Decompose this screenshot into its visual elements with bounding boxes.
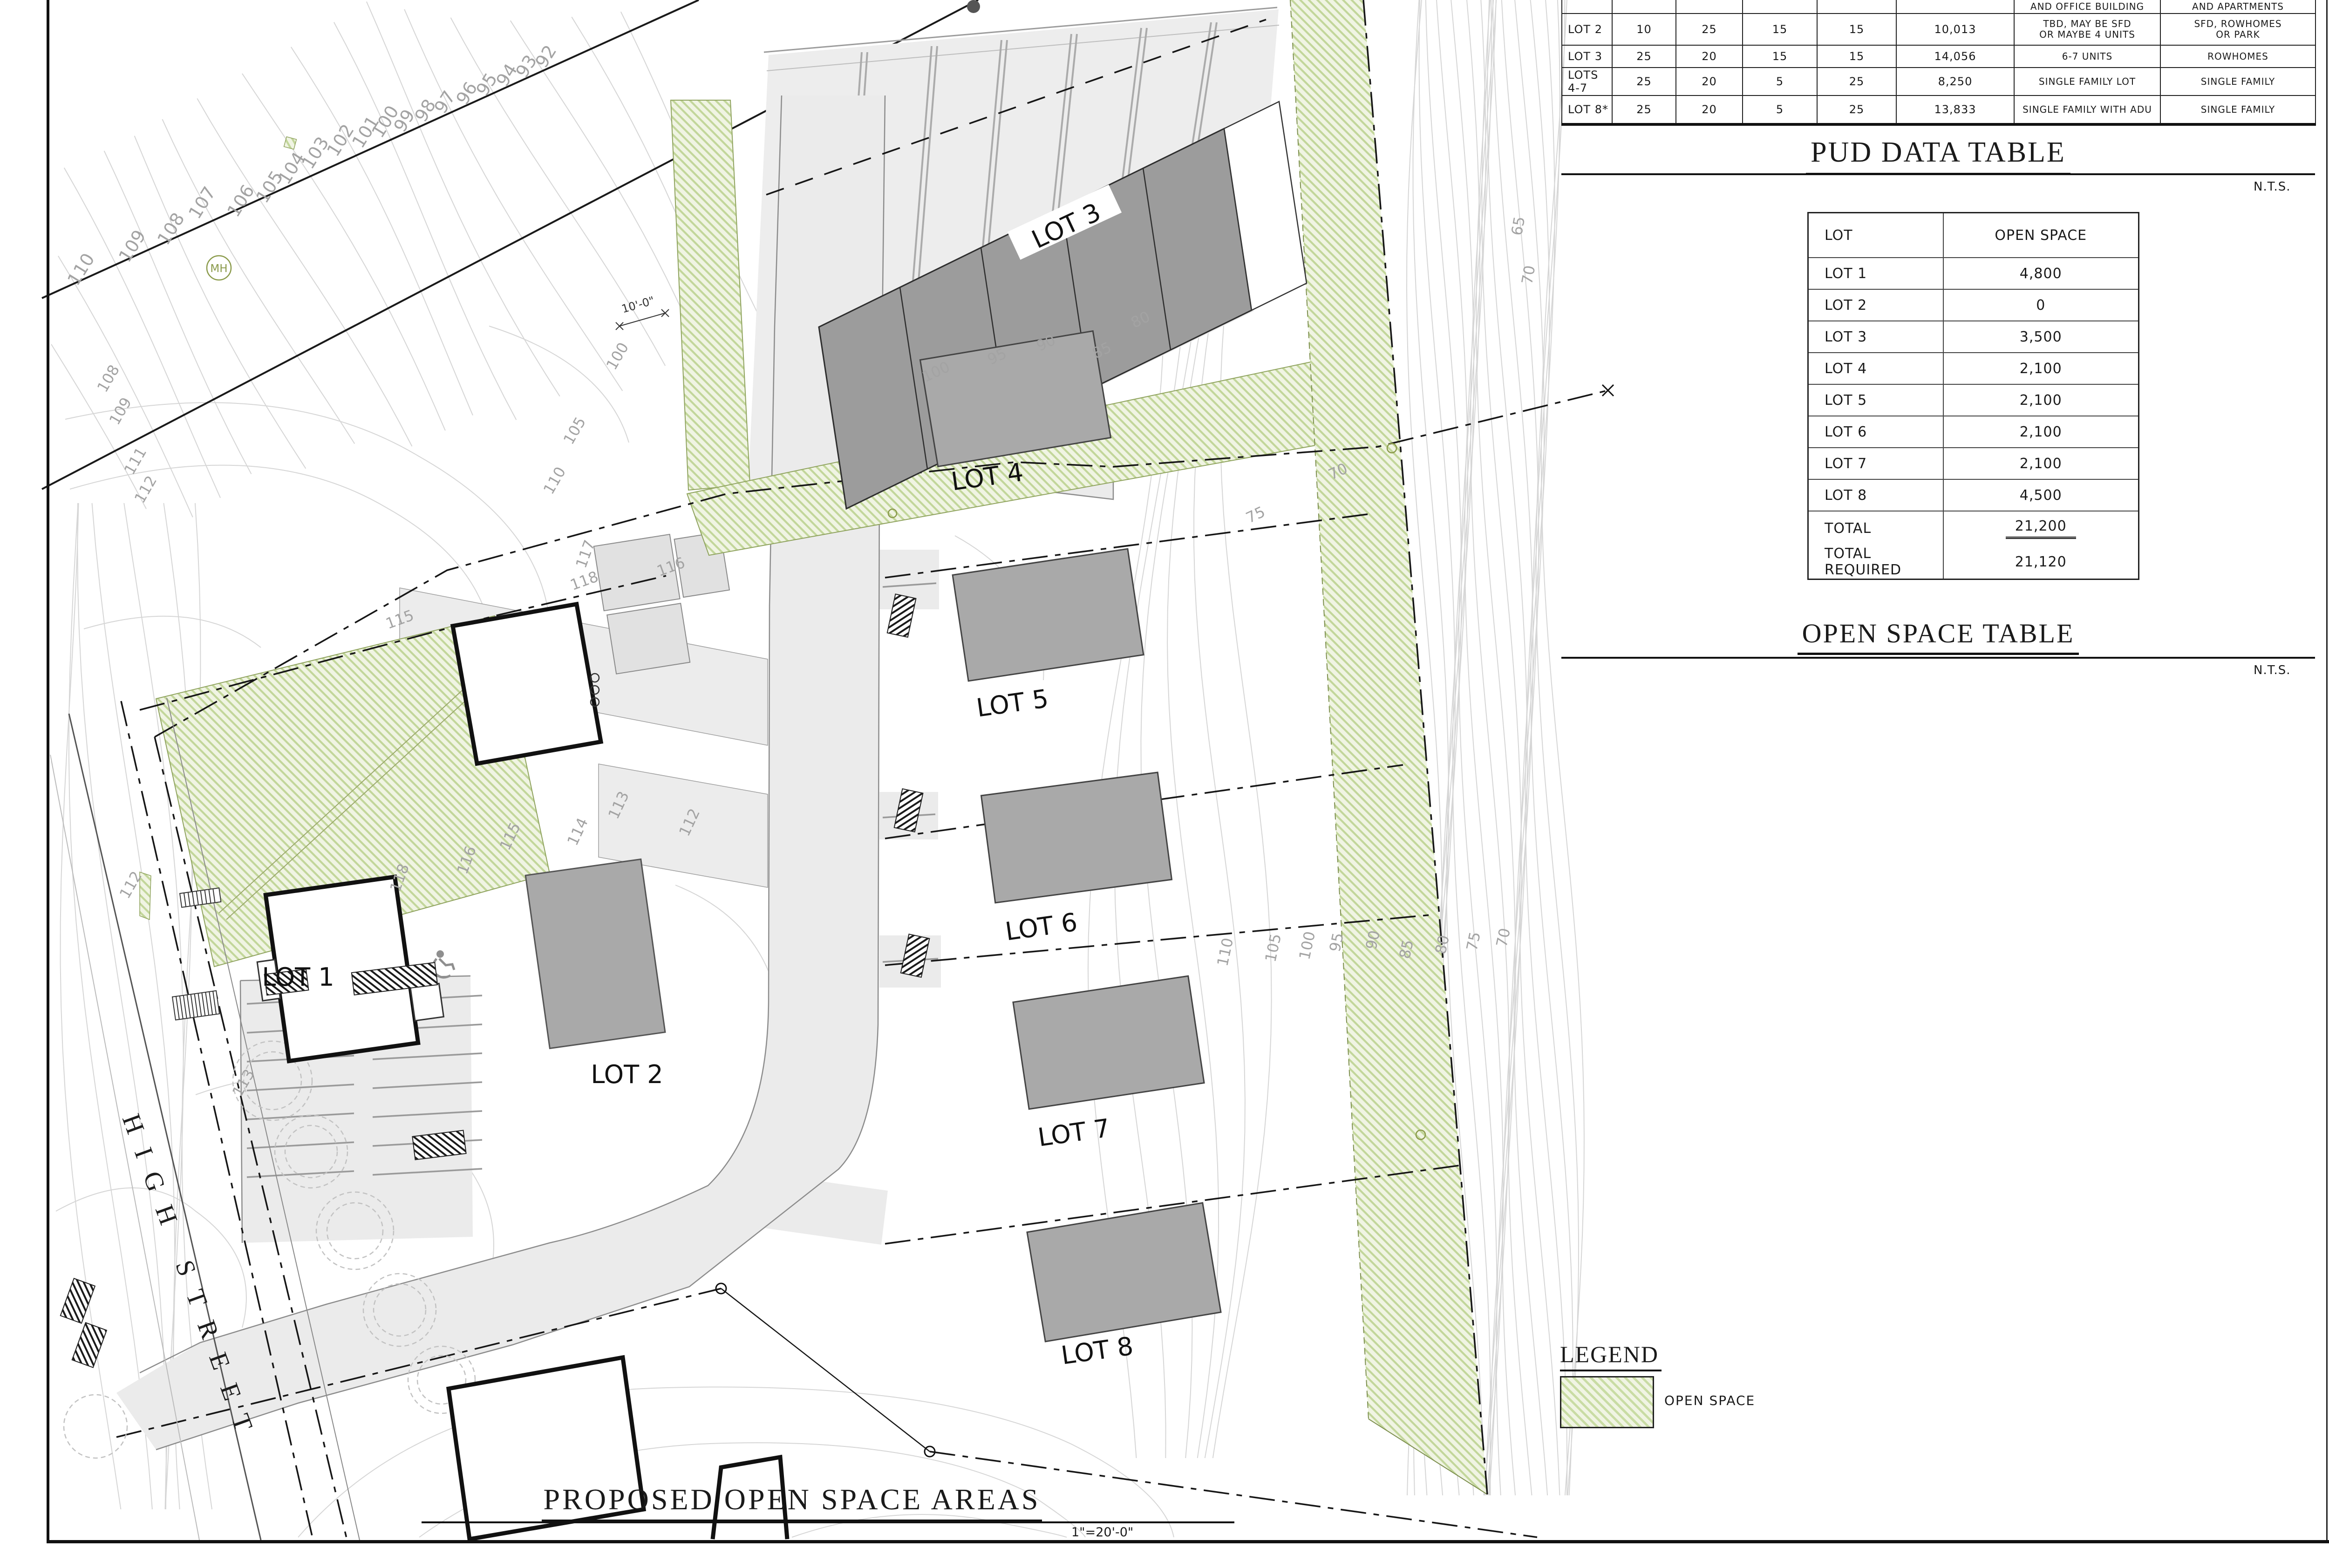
pud-cell: SINGLE FAMILY bbox=[2160, 68, 2315, 95]
rule bbox=[1561, 657, 2315, 659]
table-row: LOT OPEN SPACE bbox=[1808, 213, 2139, 258]
table-row: TOTAL REQUIRED21,120 bbox=[1808, 545, 2139, 579]
os-cell: LOT 6 bbox=[1808, 416, 1943, 448]
pud-cell: SFD, ROWHOMES OR PARK bbox=[2160, 14, 2315, 45]
pud-cell: 13,833 bbox=[1896, 95, 2014, 124]
contour-label: 108 bbox=[94, 362, 123, 395]
os-header: OPEN SPACE bbox=[1943, 213, 2139, 258]
lot2-label: LOT 2 bbox=[591, 1060, 663, 1089]
lot2-building bbox=[525, 859, 665, 1048]
legend-title: LEGEND bbox=[1560, 1341, 1662, 1371]
os-cell: 2,100 bbox=[1943, 384, 2139, 416]
table-row: LOT 52,100 bbox=[1808, 384, 2139, 416]
pud-cell: 6-7 UNITS bbox=[2014, 45, 2160, 68]
table-row: LOT 33,500 bbox=[1808, 321, 2139, 353]
contour-label: 110 bbox=[1213, 936, 1237, 968]
pud-cell: AND OFFICE BUILDING bbox=[2014, 0, 2160, 14]
legend-open-space-label: OPEN SPACE bbox=[1664, 1393, 1755, 1408]
contour-label: 109 bbox=[115, 226, 150, 266]
table-row: LOT 62,100 bbox=[1808, 416, 2139, 448]
table-row: LOT 72,100 bbox=[1808, 448, 2139, 479]
pud-cell: 25 bbox=[1676, 14, 1743, 45]
os-cell: 3,500 bbox=[1943, 321, 2139, 353]
contour-label: 117 bbox=[572, 538, 599, 570]
table-row: LOT 84,500 bbox=[1808, 479, 2139, 511]
pud-cell: ROWHOMES bbox=[2160, 45, 2315, 68]
contour-label: 75 bbox=[1463, 930, 1484, 953]
pud-cell: 20 bbox=[1676, 95, 1743, 124]
open-space-table-title: OPEN SPACE TABLE bbox=[1561, 618, 2315, 655]
plan-scale-note: 1"=20'-0" bbox=[1071, 1525, 1133, 1540]
lot6-house bbox=[981, 772, 1171, 903]
pud-cell: 20 bbox=[1676, 68, 1743, 95]
contour-label: 108 bbox=[153, 209, 189, 249]
pud-cell: LOTS 4-7 bbox=[1562, 68, 1612, 95]
rule bbox=[422, 1521, 1234, 1523]
contour-label: 109 bbox=[106, 395, 135, 428]
contour-label: 107 bbox=[184, 183, 220, 223]
contour-label: 111 bbox=[121, 444, 150, 478]
pud-cell: 10,013 bbox=[1896, 14, 2014, 45]
table-row: LOT 2 10 25 15 15 10,013 TBD, MAY BE SFD… bbox=[1562, 14, 2315, 45]
manhole: MH bbox=[207, 256, 231, 280]
pud-cell: AND APARTMENTS bbox=[2160, 0, 2315, 14]
open-space-table: LOT OPEN SPACE LOT 14,800 LOT 20 LOT 33,… bbox=[1807, 212, 2139, 580]
contour-label: 110 bbox=[540, 464, 569, 498]
lot5-label: LOT 5 bbox=[974, 684, 1050, 723]
os-cell: 21,120 bbox=[1943, 545, 2139, 579]
table-row: LOT 14,800 bbox=[1808, 258, 2139, 289]
pud-cell: LOT 2 bbox=[1562, 14, 1612, 45]
contour-label: 118 bbox=[568, 567, 600, 594]
pud-cell: 5 bbox=[1743, 95, 1817, 124]
os-cell: 4,800 bbox=[1943, 258, 2139, 289]
os-cell: 2,100 bbox=[1943, 416, 2139, 448]
pud-cell: 10 bbox=[1612, 14, 1676, 45]
os-cell: TOTAL bbox=[1808, 511, 1943, 545]
contour-label: 75 bbox=[1243, 503, 1268, 527]
pud-cell: 20 bbox=[1676, 45, 1743, 68]
os-cell: LOT 7 bbox=[1808, 448, 1943, 479]
pud-cell: SINGLE FAMILY LOT bbox=[2014, 68, 2160, 95]
pud-cell: 5 bbox=[1743, 68, 1817, 95]
pud-nts: N.T.S. bbox=[2254, 180, 2291, 194]
pud-cell: 25 bbox=[1817, 68, 1896, 95]
contour-label: 105 bbox=[1261, 932, 1285, 964]
os-cell: 2,100 bbox=[1943, 448, 2139, 479]
table-row: LOT 20 bbox=[1808, 289, 2139, 321]
pud-cell: 25 bbox=[1612, 45, 1676, 68]
os-cell: LOT 8 bbox=[1808, 479, 1943, 511]
os-cell: LOT 5 bbox=[1808, 384, 1943, 416]
pud-cell: 8,250 bbox=[1896, 68, 2014, 95]
legend: LEGEND OPEN SPACE bbox=[1560, 1341, 1662, 1371]
contour-label: 80 bbox=[1431, 934, 1453, 956]
pud-cell: 25 bbox=[1817, 95, 1896, 124]
os-cell: 2,100 bbox=[1943, 353, 2139, 384]
table-row: TOTAL21,200 bbox=[1808, 511, 2139, 545]
os-cell: 4,500 bbox=[1943, 479, 2139, 511]
table-row: LOT 8* 25 20 5 25 13,833 SINGLE FAMILY W… bbox=[1562, 95, 2315, 124]
lot6-label: LOT 6 bbox=[1003, 907, 1079, 947]
table-row: LOT 3 25 20 15 15 14,056 6-7 UNITS ROWHO… bbox=[1562, 45, 2315, 68]
mh-label: MH bbox=[210, 263, 227, 275]
contour-label: 65 bbox=[1508, 215, 1528, 237]
table-row: LOTS 4-7 25 20 5 25 8,250 SINGLE FAMILY … bbox=[1562, 68, 2315, 95]
lot7-house bbox=[1013, 976, 1204, 1109]
contour-label: 110 bbox=[63, 250, 99, 289]
pud-cell: 15 bbox=[1743, 14, 1817, 45]
open-space-nts: N.T.S. bbox=[2254, 663, 2291, 677]
pud-cell: 25 bbox=[1612, 68, 1676, 95]
pud-cell: TBD, MAY BE SFD OR MAYBE 4 UNITS bbox=[2014, 14, 2160, 45]
table-row: AND OFFICE BUILDING AND APARTMENTS bbox=[1562, 0, 2315, 14]
os-cell: TOTAL REQUIRED bbox=[1808, 545, 1943, 579]
os-cell: 0 bbox=[1943, 289, 2139, 321]
pud-cell: SINGLE FAMILY WITH ADU bbox=[2014, 95, 2160, 124]
pud-table-title: PUD DATA TABLE bbox=[1561, 136, 2315, 175]
os-cell: LOT 1 bbox=[1808, 258, 1943, 289]
rule bbox=[1561, 173, 2315, 175]
os-cell: LOT 3 bbox=[1808, 321, 1943, 353]
os-cell: LOT 4 bbox=[1808, 353, 1943, 384]
pud-cell: SINGLE FAMILY bbox=[2160, 95, 2315, 124]
contour-label: 114 bbox=[564, 815, 592, 848]
barn-building bbox=[453, 604, 601, 764]
pud-cell: 15 bbox=[1817, 45, 1896, 68]
drawing-sheet: MH HIGH STREET 10'-0" LOT 1 LOT 2 LOT 3 … bbox=[0, 0, 2329, 1568]
pud-data-table: AND OFFICE BUILDING AND APARTMENTS LOT 2… bbox=[1561, 0, 2316, 126]
contour-label: 100 bbox=[1295, 930, 1319, 961]
contour-label: 105 bbox=[560, 414, 589, 448]
lot5-house bbox=[953, 549, 1144, 681]
os-header: LOT bbox=[1808, 213, 1943, 258]
pud-cell: 25 bbox=[1612, 95, 1676, 124]
contour-label: 70 bbox=[1492, 927, 1514, 949]
open-space-swatch bbox=[1560, 1376, 1654, 1428]
table-row: LOT 42,100 bbox=[1808, 353, 2139, 384]
lot1-label: LOT 1 bbox=[262, 962, 334, 992]
pud-cell: LOT 3 bbox=[1562, 45, 1612, 68]
pud-cell: LOT 8* bbox=[1562, 95, 1612, 124]
plan-title: PROPOSED OPEN SPACE AREAS bbox=[512, 1482, 1071, 1522]
os-cell: LOT 2 bbox=[1808, 289, 1943, 321]
contour-label: 106 bbox=[223, 181, 259, 221]
pud-cell: 14,056 bbox=[1896, 45, 2014, 68]
lot7-label: LOT 7 bbox=[1036, 1113, 1111, 1152]
pud-cell: 15 bbox=[1743, 45, 1817, 68]
contour-label: 70 bbox=[1518, 264, 1539, 286]
pud-cell: 15 bbox=[1817, 14, 1896, 45]
os-total-value: 21,200 bbox=[2006, 518, 2076, 539]
